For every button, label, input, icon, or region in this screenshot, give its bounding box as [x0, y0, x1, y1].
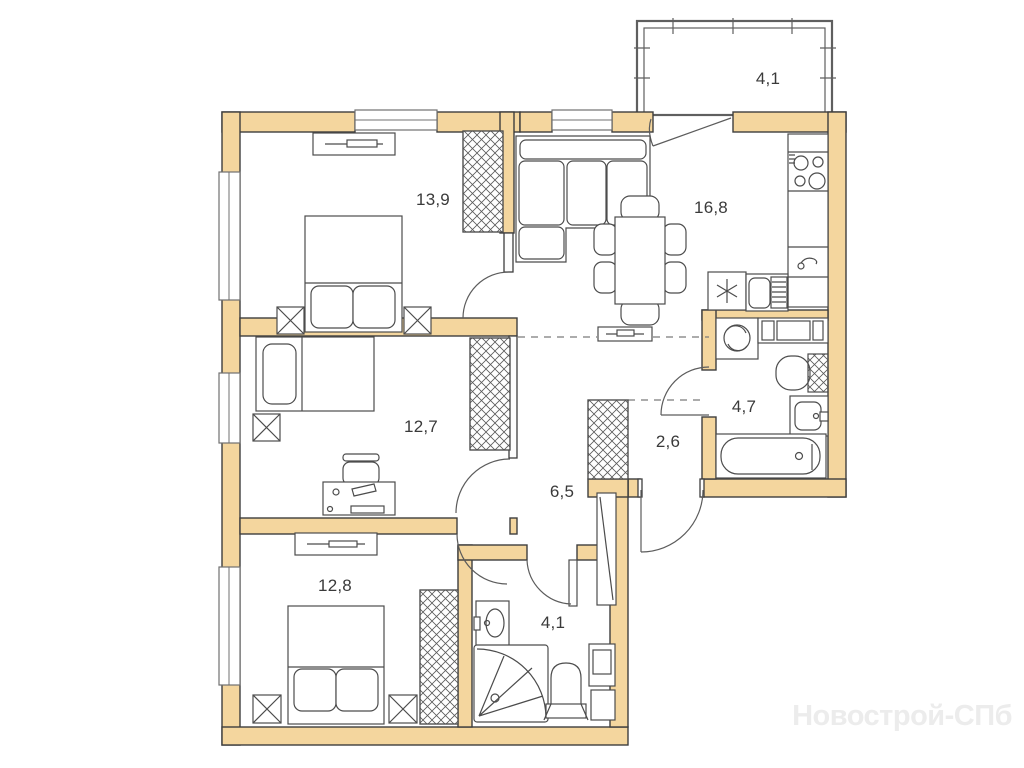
zone-boundaries — [518, 337, 709, 400]
wardrobe-icon — [470, 338, 510, 450]
wardrobe-icon — [420, 590, 458, 724]
balcony-glazing — [634, 18, 836, 115]
balcony-door — [649, 118, 731, 146]
mirror-icon — [597, 493, 616, 605]
toilet-icon — [544, 663, 588, 720]
tv-stand-icon — [598, 327, 652, 341]
shower-icon — [474, 645, 548, 722]
dining-table-icon — [615, 217, 665, 304]
room-label-bedroom-middle: 12,7 — [391, 416, 451, 438]
kitchen-counter-icon — [788, 134, 828, 307]
floor-plan: 13,9 16,8 4,1 12,7 6,5 2,6 4,7 12,8 4,1 … — [0, 0, 1024, 768]
pillow-icon — [311, 286, 353, 328]
bathroom-cabinet-icon — [589, 644, 615, 720]
bedroom-bottom-furniture — [253, 533, 458, 724]
room-label-bedroom-bottom: 12,8 — [305, 575, 365, 597]
floor-plan-drawing — [0, 0, 1024, 768]
room-label-bedroom-top: 13,9 — [403, 189, 463, 211]
nightstand-icon — [389, 695, 417, 723]
room-label-bathroom: 4,7 — [714, 396, 774, 418]
pillow-icon — [336, 669, 378, 711]
desk-icon — [323, 482, 395, 515]
pillow-icon — [353, 286, 395, 328]
bedroom-middle-furniture — [253, 337, 510, 515]
room-label-balcony: 4,1 — [738, 68, 798, 90]
room-label-corridor: 2,6 — [638, 431, 698, 453]
washing-machine-icon — [716, 318, 758, 359]
kitchen-living-furniture — [516, 134, 828, 341]
toilet-icon — [776, 354, 828, 392]
bedroom-top-furniture — [277, 131, 503, 334]
room-label-kitchen-living: 16,8 — [681, 197, 741, 219]
sink-icon — [474, 601, 509, 646]
pillow-icon — [294, 669, 336, 711]
wardrobe-icon — [588, 400, 628, 479]
shower-room-door-panel — [569, 560, 577, 606]
wardrobe-icon — [463, 131, 503, 232]
nightstand-icon — [277, 307, 304, 334]
watermark: Новострой-СПб — [770, 700, 1012, 733]
sink-icon — [790, 396, 828, 436]
room-label-hallway: 6,5 — [532, 481, 592, 503]
desk-chair-icon — [343, 454, 379, 485]
pillow-icon — [263, 344, 296, 404]
room-label-shower-room: 4,1 — [523, 612, 583, 634]
nightstand-icon — [253, 695, 281, 723]
entrance-door — [641, 490, 703, 552]
kitchen-sink-icon — [746, 274, 788, 311]
nightstand-icon — [253, 414, 280, 441]
nightstand-icon — [404, 307, 431, 334]
refrigerator-icon — [708, 272, 746, 310]
bathroom-counter-icon — [758, 318, 828, 343]
bathtub-icon — [716, 434, 826, 478]
